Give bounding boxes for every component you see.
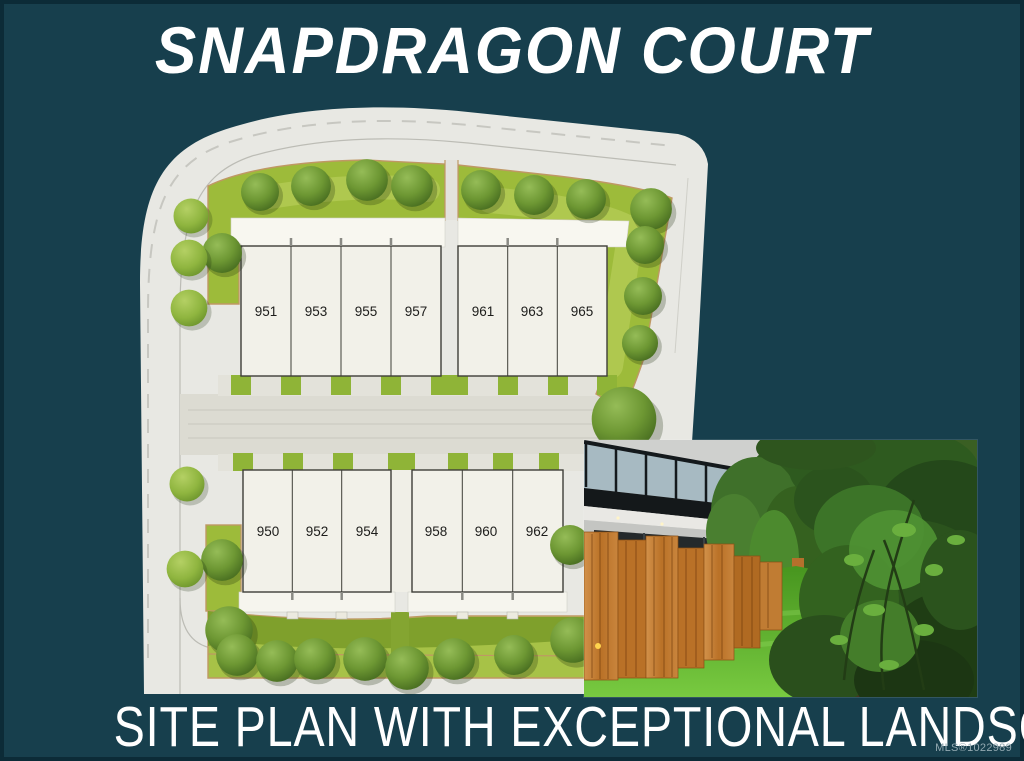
unit-label: 951	[255, 304, 278, 319]
unit-label: 957	[405, 304, 428, 319]
unit-label: 950	[257, 524, 280, 539]
building: 961 963 965	[458, 238, 607, 376]
unit-label: 962	[526, 524, 549, 539]
unit-label: 958	[425, 524, 448, 539]
building: 951 953 955 957	[241, 238, 441, 376]
page-title: SNAPDRAGON COURT	[0, 12, 1024, 88]
unit-label: 952	[306, 524, 329, 539]
unit-label: 961	[472, 304, 495, 319]
unit-label: 954	[356, 524, 379, 539]
walkway	[445, 160, 458, 220]
building: 958 960 962	[412, 470, 563, 600]
mls-number: MLS®1022989	[935, 742, 1012, 754]
caption-text: SITE PLAN WITH EXCEPTIONAL LANDSCAPE	[114, 694, 1024, 760]
listing-image: SNAPDRAGON COURT	[0, 0, 1024, 761]
caption: SITE PLAN WITH EXCEPTIONAL LANDSCAPE	[0, 694, 1024, 760]
unit-label: 963	[521, 304, 544, 319]
unit-label: 955	[355, 304, 378, 319]
page-title-text: SNAPDRAGON COURT	[155, 12, 870, 88]
unit-label: 960	[475, 524, 498, 539]
unit-label: 965	[571, 304, 594, 319]
building: 950 952 954	[243, 470, 391, 600]
unit-label: 953	[305, 304, 328, 319]
backyard-photo	[584, 440, 977, 697]
